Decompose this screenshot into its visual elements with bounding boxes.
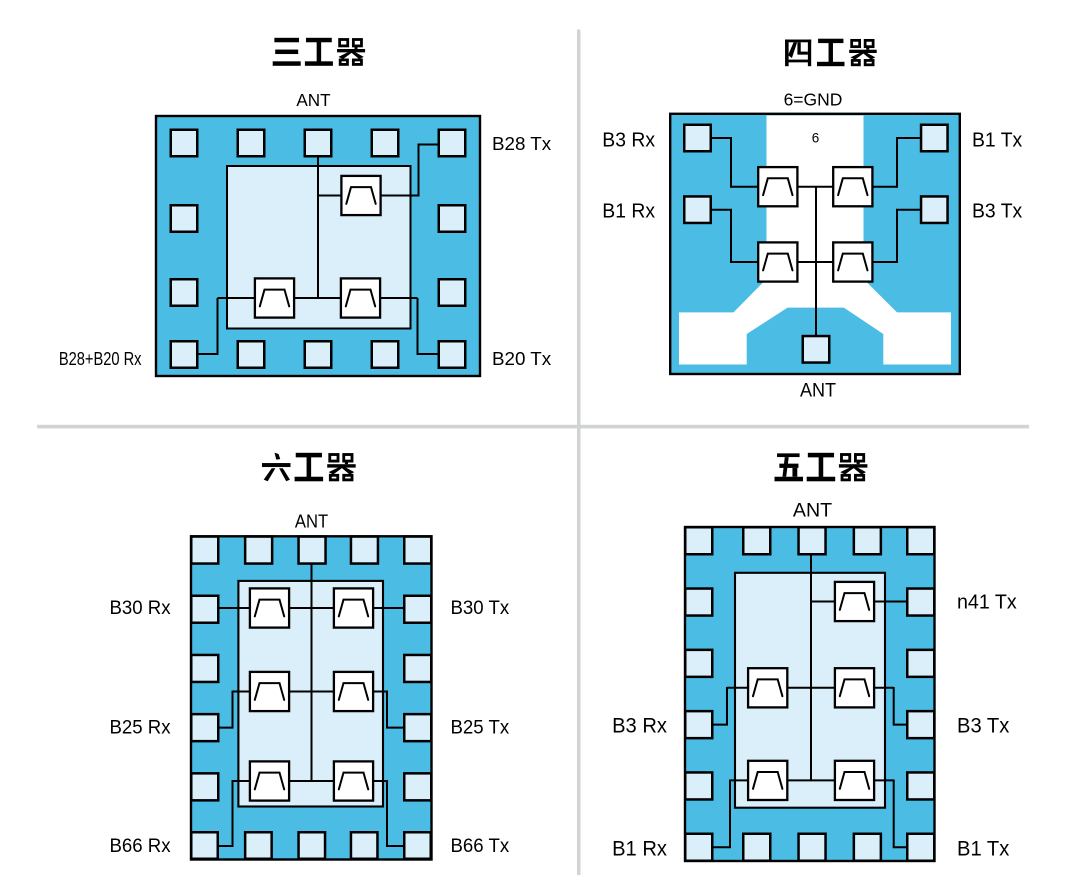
svg-text:B3 Rx: B3 Rx [602,129,655,152]
svg-text:B3 Tx: B3 Tx [972,200,1022,223]
svg-text:ANT: ANT [793,499,832,521]
svg-text:ANT: ANT [296,90,330,111]
svg-text:ANT: ANT [295,511,329,532]
svg-text:B25 Tx: B25 Tx [451,717,510,738]
svg-text:B3 Rx: B3 Rx [612,714,668,737]
svg-text:B1 Tx: B1 Tx [957,837,1010,860]
svg-text:B28+B20 Rx: B28+B20 Rx [59,348,142,369]
svg-text:B1 Rx: B1 Rx [602,200,655,223]
svg-text:B1 Tx: B1 Tx [972,129,1022,152]
svg-text:6: 6 [812,131,820,146]
svg-text:n41 Tx: n41 Tx [957,591,1017,613]
svg-text:B30 Tx: B30 Tx [451,598,510,619]
svg-text:B30 Rx: B30 Rx [109,598,171,619]
svg-text:B28 Tx: B28 Tx [492,133,552,154]
svg-text:ANT: ANT [800,379,836,401]
svg-text:B1 Rx: B1 Rx [612,837,668,860]
svg-text:6=GND: 6=GND [784,90,843,110]
svg-text:B25 Rx: B25 Rx [109,717,171,738]
svg-text:B3 Tx: B3 Tx [957,714,1010,737]
svg-text:B66 Rx: B66 Rx [109,836,171,857]
svg-text:B20 Tx: B20 Tx [492,348,552,369]
svg-text:B66 Tx: B66 Tx [451,836,510,857]
